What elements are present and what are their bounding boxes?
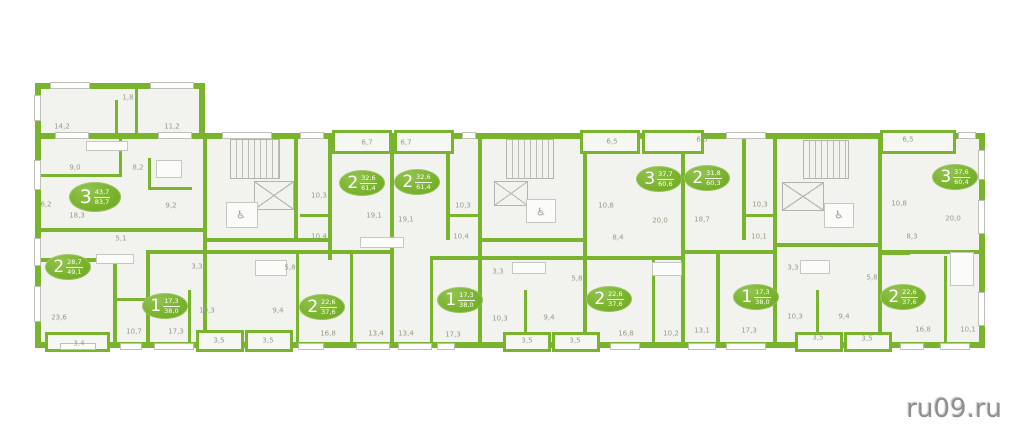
room-area-label: 5,8 [866,275,877,282]
room-area-label: 9,2 [165,203,176,210]
badge-total-area: 37,6 [902,298,916,306]
badge-total-area: 37,6 [321,308,335,316]
room-area-label: 17,3 [445,332,461,339]
room-area-label: 10,1 [751,234,767,241]
wall [148,158,151,190]
room-area-label: 8,4 [612,235,623,242]
window [726,132,766,139]
room-area-label: 9,4 [272,308,283,315]
floor-plan-image: ♿♿♿1,814,211,29,08,26,218,39,25,123,63,4… [0,0,1024,434]
badge-living-area: 28,7 [66,258,82,267]
window [356,343,390,350]
stairs [506,139,554,179]
stairs [803,140,849,179]
balcony [642,130,704,154]
wall [115,100,118,133]
apartment-badge: 222,637,6 [880,284,926,310]
fixture [86,141,128,151]
elevator [494,181,528,206]
wheelchair-icon: ♿ [536,206,546,219]
room-area-label: 13,4 [368,331,384,338]
window [120,343,142,350]
wall [430,256,683,260]
badge-total-area: 61,4 [416,183,430,191]
wall [350,252,353,342]
badge-area-fraction: 22,637,6 [607,290,623,307]
badge-living-area: 17,3 [458,291,474,300]
wall [742,139,746,240]
room-area-label: 3,3 [492,269,503,276]
room-area-label: 8,2 [132,165,143,172]
window [50,82,90,89]
fixture [96,254,134,264]
window [154,343,194,350]
apartment-badge: 231,860,3 [684,165,730,191]
badge-total-area: 83,7 [95,198,109,206]
room-area-label: 14,2 [54,124,70,131]
badge-total-area: 61,4 [361,184,375,192]
room-area-label: 9,4 [838,314,849,321]
wall [742,214,773,217]
badge-living-area: 22,6 [320,298,336,307]
room-area-label: 10,3 [492,316,508,323]
window [940,343,970,350]
wall [35,228,205,232]
wall [773,139,777,342]
room-area-label: 13,4 [398,331,414,338]
room-area-label: 5,8 [284,265,295,272]
badge-living-area: 32,6 [415,173,431,182]
window [34,238,41,266]
watermark: ru09.ru [906,394,1002,424]
badge-living-area: 17,3 [163,297,179,306]
badge-room-count: 2 [888,289,899,306]
apartment-badge: 117,338,0 [437,287,483,313]
wall [146,250,394,254]
room-area-label: 10,4 [311,234,327,241]
room-area-label: 16,8 [618,331,634,338]
wall [300,214,328,217]
room-area-label: 10,2 [663,331,679,338]
badge-room-count: 2 [692,170,703,187]
room-area-label: 10,3 [455,203,471,210]
room-area-label: 10,1 [960,327,976,334]
fixture [255,260,287,276]
apartment-badge: 117,338,0 [142,293,188,319]
room-area-label: 17,3 [168,329,184,336]
wall [135,86,138,133]
badge-room-count: 2 [307,299,318,316]
room-area-label: 19,1 [366,213,382,220]
room-area-label: 16,8 [320,331,336,338]
room-area-label: 3,5 [213,338,224,345]
window [900,343,924,350]
badge-living-area: 31,8 [705,169,721,178]
room-area-label: 6,7 [400,140,411,147]
badge-area-fraction: 17,338,0 [754,288,770,305]
apartment-badge: 337,760,6 [636,166,682,192]
window [437,343,455,350]
fixture [512,262,546,274]
badge-room-count: 1 [150,298,161,315]
wall [878,139,882,342]
badge-area-fraction: 22,637,6 [901,288,917,305]
window [398,343,432,350]
badge-area-fraction: 37,660,4 [953,168,969,185]
stairs [230,139,280,179]
room-area-label: 19,1 [398,217,414,224]
window [978,200,985,234]
badge-total-area: 60,4 [954,178,968,186]
window [958,132,976,139]
wall [35,174,121,177]
room-area-label: 3,4 [73,341,84,348]
wheelchair-icon: ♿ [236,209,246,222]
room-area-label: 18,3 [69,213,85,220]
fixture [800,260,830,274]
room-area-label: 6,5 [696,137,707,144]
apartment-badge: 232,661,4 [339,170,385,196]
apartment-badge: 222,637,6 [586,286,632,312]
badge-area-fraction: 32,661,4 [415,173,431,190]
badge-area-fraction: 43,783,7 [94,188,110,205]
badge-area-fraction: 32,661,4 [360,174,376,191]
fixture [156,160,182,178]
room-area-label: 5,1 [115,236,126,243]
room-area-label: 3,5 [521,338,532,345]
wall [294,139,298,240]
room-area-label: 10,3 [311,193,327,200]
apartment-badge: 232,661,4 [394,169,440,195]
badge-room-count: 3 [940,169,951,186]
room-area-label: 3,5 [861,336,872,343]
room-area-label: 18,7 [694,217,710,224]
badge-living-area: 22,6 [607,290,623,299]
wall [480,238,585,242]
badge-total-area: 60,6 [658,180,672,188]
badge-room-count: 2 [347,175,358,192]
badge-total-area: 37,6 [608,300,622,308]
badge-area-fraction: 17,338,0 [163,297,179,314]
balcony [880,130,956,154]
badge-room-count: 3 [80,188,92,207]
room-area-label: 3,3 [191,264,202,271]
room-area-label: 13,1 [694,328,710,335]
wall [681,139,685,342]
window [150,82,194,89]
room-area-label: 6,5 [606,139,617,146]
badge-total-area: 49,1 [67,268,81,276]
window [158,132,192,139]
fixture [652,262,682,276]
room-area-label: 17,3 [741,328,757,335]
room-area-label: 9,4 [543,315,554,322]
room-area-label: 6,7 [361,140,372,147]
badge-room-count: 1 [741,289,752,306]
window [298,343,324,350]
badge-area-fraction: 28,749,1 [66,258,82,275]
wall [188,290,191,342]
badge-area-fraction: 22,637,6 [320,298,336,315]
elevator [254,181,294,210]
badge-living-area: 37,6 [953,168,969,177]
window [34,95,41,121]
wall [446,139,450,240]
room-area-label: 3,5 [569,338,580,345]
badge-room-count: 3 [644,171,655,188]
wall [944,256,947,342]
wall [199,83,205,139]
badge-room-count: 2 [594,291,605,308]
room-area-label: 5,8 [571,276,582,283]
badge-area-fraction: 17,338,0 [458,291,474,308]
badge-total-area: 38,0 [755,298,769,306]
room-area-label: 3,5 [262,338,273,345]
window [978,150,985,180]
wall [148,187,192,190]
fixture [950,252,974,286]
wall [878,252,910,255]
room-area-label: 10,3 [752,202,768,209]
badge-room-count: 1 [445,292,456,309]
window [726,343,766,350]
wall [296,252,299,342]
apartment-badge: 343,783,7 [69,182,121,212]
room-area-label: 16,8 [915,327,931,334]
badge-area-fraction: 37,760,6 [657,170,673,187]
room-area-label: 20,0 [652,218,668,225]
window [34,160,41,190]
badge-living-area: 37,7 [657,170,673,179]
room-area-label: 6,5 [902,137,913,144]
badge-total-area: 38,0 [164,307,178,315]
badge-living-area: 17,3 [754,288,770,297]
wall [683,250,775,254]
floor-plan: ♿♿♿1,814,211,29,08,26,218,39,25,123,63,4… [0,0,1024,434]
badge-living-area: 43,7 [94,188,110,197]
wheelchair-icon: ♿ [834,209,844,222]
room-area-label: 20,0 [945,216,961,223]
badge-total-area: 38,0 [459,301,473,309]
elevator [782,182,824,211]
room-area-label: 11,2 [164,124,180,131]
room-area-label: 10,8 [598,203,614,210]
room-area-label: 23,6 [51,315,67,322]
room-area-label: 10,4 [453,234,469,241]
room-area-label: 6,2 [40,202,51,209]
apartment-badge: 228,749,1 [45,254,91,280]
window [300,132,324,139]
badge-room-count: 2 [53,259,64,276]
room-area-label: 10,3 [199,308,215,315]
window [610,343,640,350]
room-area-label: 3,5 [812,335,823,342]
badge-room-count: 2 [402,174,413,191]
apartment-badge: 222,637,6 [299,294,345,320]
badge-area-fraction: 31,860,3 [705,169,721,186]
window [55,132,89,139]
badge-total-area: 60,3 [706,179,720,187]
room-area-label: 3,3 [787,265,798,272]
apartment-badge: 337,660,4 [932,164,978,190]
window [688,343,716,350]
window [34,286,41,322]
window [222,132,272,139]
fixture [360,237,404,248]
room-area-label: 10,8 [891,201,907,208]
window [462,132,476,139]
wall [716,252,720,342]
room-area-label: 8,3 [906,234,917,241]
room-area-label: 10,3 [787,314,803,321]
room-area-label: 10,7 [126,329,142,336]
room-area-label: 1,8 [122,95,133,102]
badge-living-area: 22,6 [901,288,917,297]
wall [446,214,478,217]
window [978,292,985,326]
room-area-label: 9,0 [69,165,80,172]
wall [775,243,878,247]
apartment-badge: 117,338,0 [733,284,779,310]
wall [430,258,433,342]
badge-living-area: 32,6 [360,174,376,183]
